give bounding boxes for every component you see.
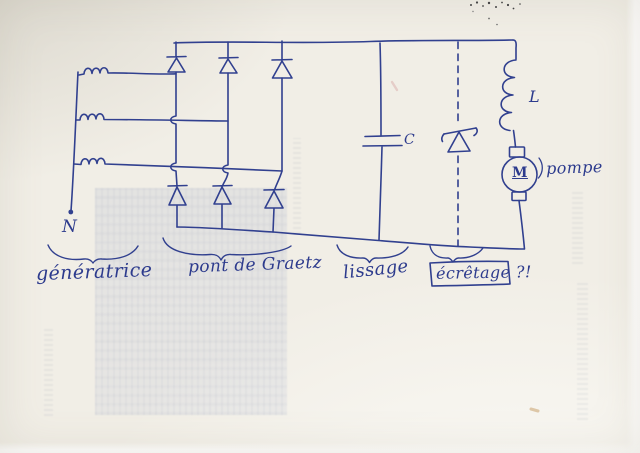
bridge-caption: pont de Graetz — [188, 255, 322, 277]
zener-diode-symbol — [442, 128, 477, 152]
neutral-wire — [71, 72, 78, 211]
bridge-leg-1 — [171, 72, 177, 186]
bridge-leg-3 — [275, 78, 283, 190]
inductor-to-motor-wire — [514, 131, 516, 148]
star-point-dot — [68, 210, 73, 215]
motor-terminal-top — [510, 147, 525, 157]
diode-bottom-2 — [213, 186, 232, 229]
graetz-bridge — [167, 40, 524, 249]
capacitor-branch — [363, 43, 402, 240]
phase-2-wire — [76, 114, 228, 121]
diode-bottom-1 — [168, 186, 187, 228]
diode-top-3 — [272, 41, 292, 78]
motor-terminal-bottom — [512, 192, 526, 201]
neutral-label: N — [62, 219, 77, 236]
capacitor-wire-bottom — [379, 147, 382, 240]
generator-caption: génératrice — [36, 261, 153, 284]
inductor-coil — [500, 60, 516, 131]
top-rail-wire — [174, 40, 513, 43]
brace-clipping — [430, 246, 483, 262]
clipper-branch — [442, 42, 477, 246]
pump-label: pompe — [546, 159, 603, 177]
capacitor-symbol — [363, 136, 402, 147]
capacitor-wire-top — [380, 43, 381, 135]
diode-top-2 — [219, 42, 238, 73]
motor-bottom-wire — [519, 201, 525, 250]
pink-smudge — [392, 82, 397, 90]
capacitor-label: C — [404, 133, 415, 147]
dust-speckles — [470, 1, 521, 25]
bottom-rail-wire — [177, 227, 524, 249]
scanned-circuit-page: N génératrice pont de Graetz lissage écr… — [0, 0, 640, 453]
circuit-drawing — [0, 0, 640, 453]
motor-label: M — [511, 166, 529, 180]
phase-1-wire — [79, 68, 176, 75]
phase-3-wire — [74, 158, 282, 171]
pump-paren — [539, 158, 543, 178]
load-branch — [500, 40, 543, 249]
diode-bottom-3 — [264, 190, 284, 233]
tan-speck — [531, 409, 538, 411]
diode-top-1 — [167, 42, 186, 72]
inductor-label: L — [529, 89, 540, 105]
right-rail-corner — [513, 40, 516, 59]
clipping-caption: écrêtage ?! — [436, 264, 532, 282]
